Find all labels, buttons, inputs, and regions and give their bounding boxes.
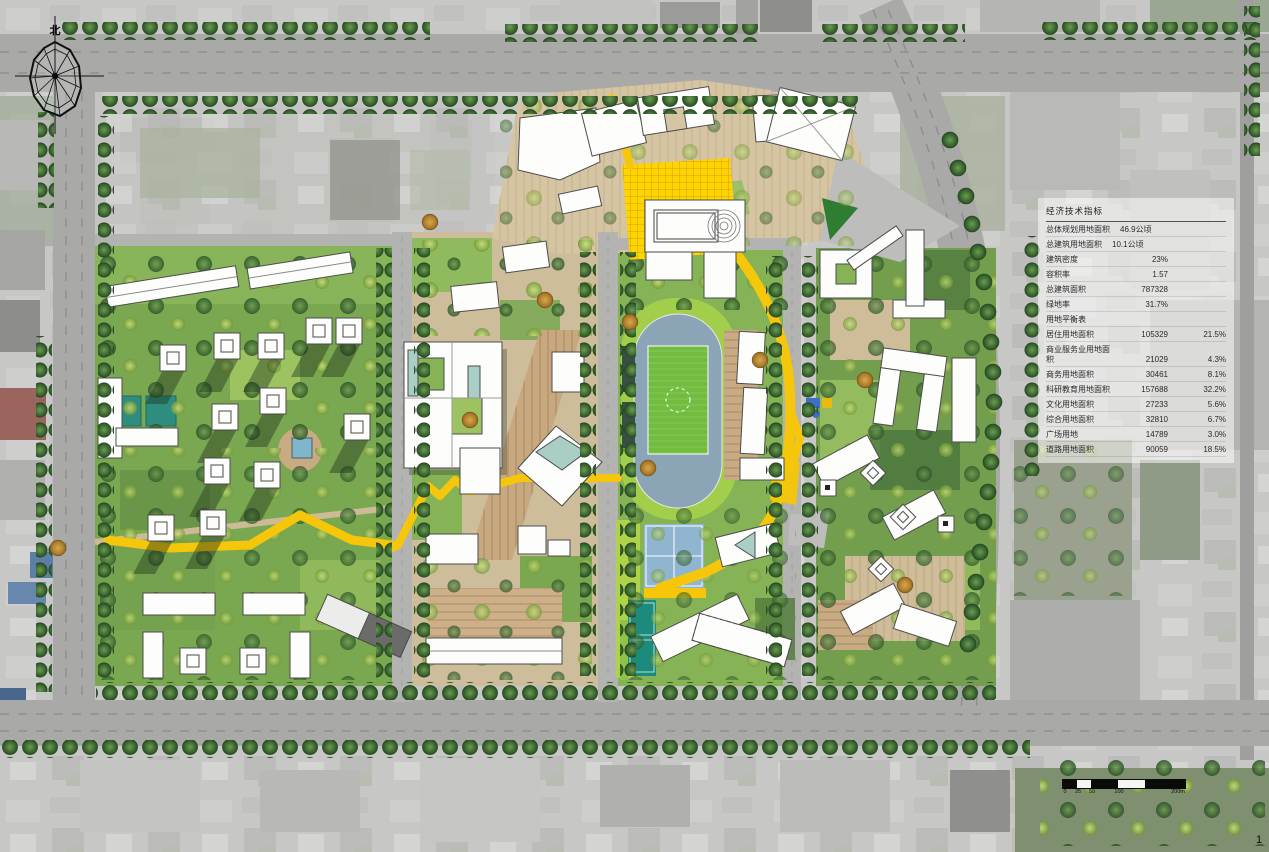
- scale-bar: 0 25 50 100 200m: [1062, 779, 1192, 797]
- table-row: 居住用地面积10532921.5%: [1046, 327, 1226, 342]
- north-compass: 北: [0, 0, 112, 140]
- table-row: 建筑密度23%: [1046, 252, 1226, 267]
- table-row: 道路用地面积9005918.5%: [1046, 442, 1226, 457]
- north-label: 北: [50, 23, 61, 37]
- pool-building: [645, 200, 745, 252]
- table-title: 经济技术指标: [1046, 202, 1226, 222]
- table-row: 总体规划用地面积46.9公顷: [1046, 222, 1226, 237]
- table-row: 总建筑用地面积10.1公顷: [1046, 237, 1226, 252]
- table-row: 文化用地面积272335.6%: [1046, 397, 1226, 412]
- table-row: 绿地率31.7%: [1046, 297, 1226, 312]
- table-row: 综合用地面积328106.7%: [1046, 412, 1226, 427]
- indicators-table: 经济技术指标 总体规划用地面积46.9公顷 总建筑用地面积10.1公顷 建筑密度…: [1038, 198, 1234, 463]
- table-row: 商业服务业用地面积210294.3%: [1046, 342, 1226, 367]
- scale-bar-segments: [1062, 779, 1186, 789]
- table-row: 广场用地147893.0%: [1046, 427, 1226, 442]
- table-row: 商务用地面积304618.1%: [1046, 367, 1226, 382]
- masterplan-rendering: 经济技术指标 总体规划用地面积46.9公顷 总建筑用地面积10.1公顷 建筑密度…: [0, 0, 1269, 852]
- table-row: 科研教育用地面积15768832.2%: [1046, 382, 1226, 397]
- table-row: 容积率1.57: [1046, 267, 1226, 282]
- scale-bar-labels: 0 25 50 100 200m: [1062, 789, 1192, 797]
- corner-page-digit: 1: [1256, 834, 1262, 846]
- table-row: 总建筑面积787328: [1046, 282, 1226, 297]
- table-section-header: 用地平衡表: [1046, 312, 1226, 327]
